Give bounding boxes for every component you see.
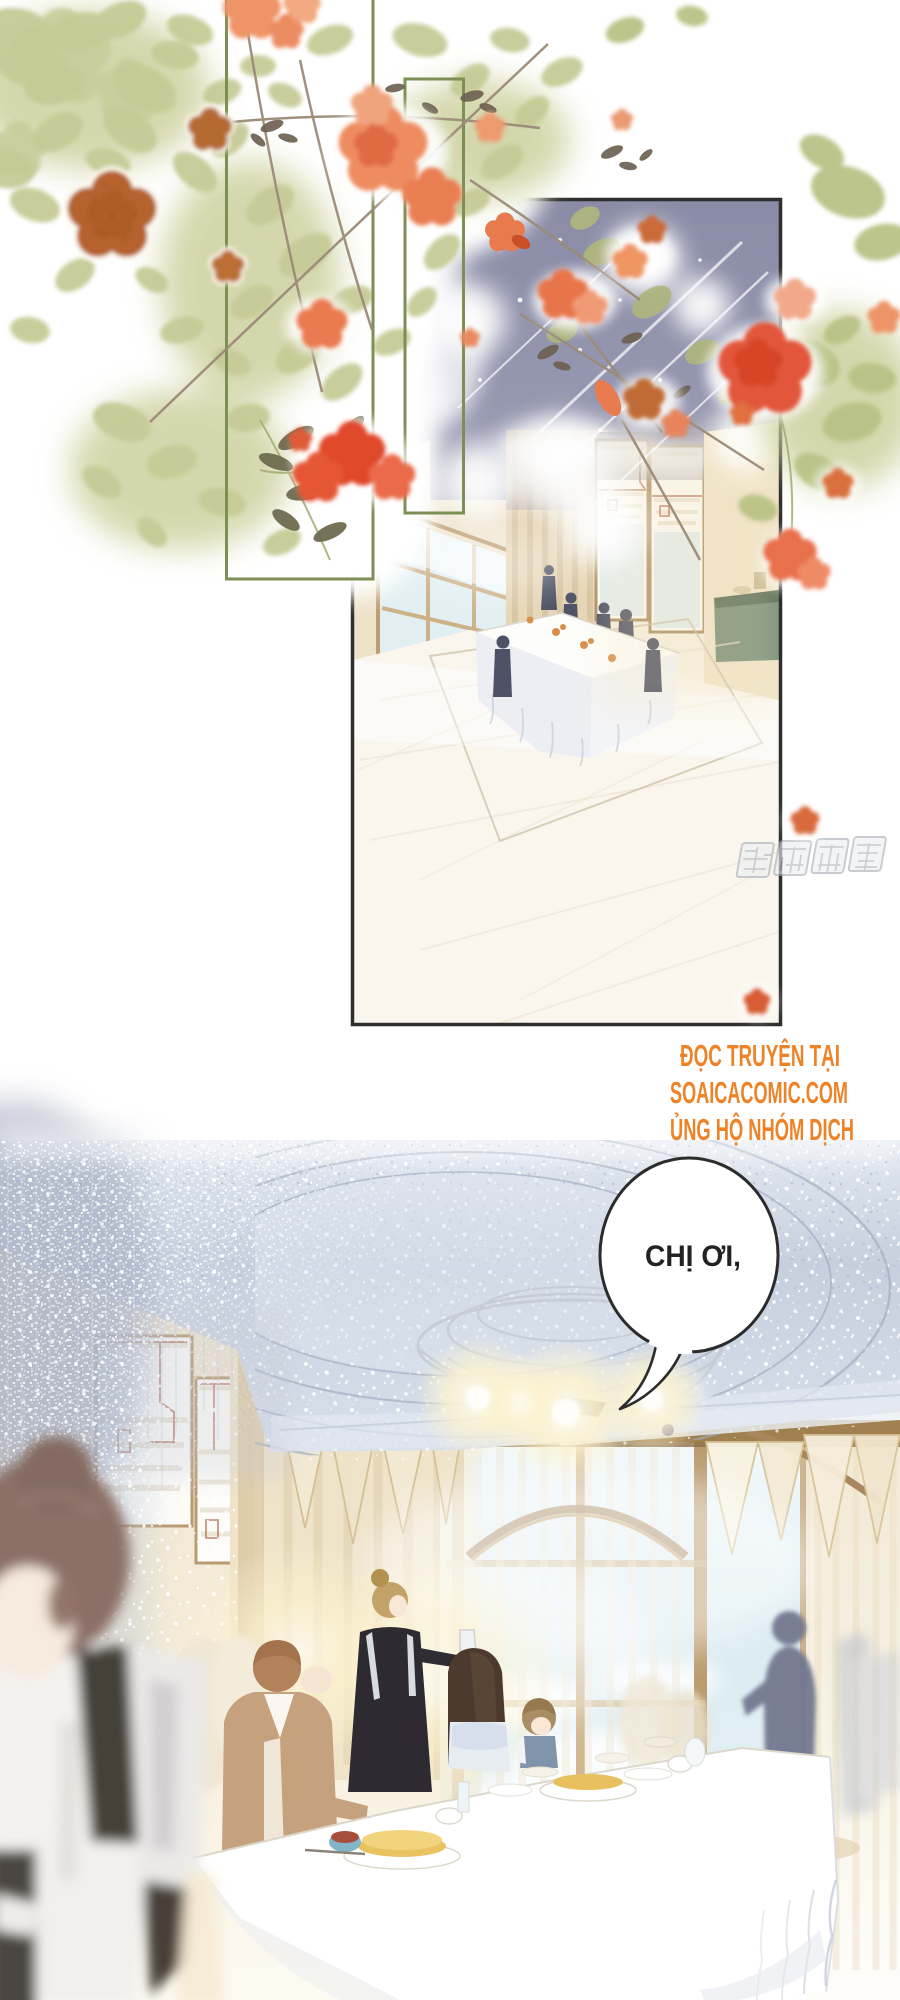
svg-text:ĐỌC TRUYỆN TẠI: ĐỌC TRUYỆN TẠI — [680, 1037, 840, 1073]
svg-text:CHỊ ƠI,: CHỊ ƠI, — [645, 1240, 741, 1273]
svg-text:ỦNG HỘ NHÓM DỊCH: ỦNG HỘ NHÓM DỊCH — [670, 1111, 854, 1147]
svg-text:SOAICACOMIC.COM: SOAICACOMIC.COM — [670, 1075, 848, 1110]
